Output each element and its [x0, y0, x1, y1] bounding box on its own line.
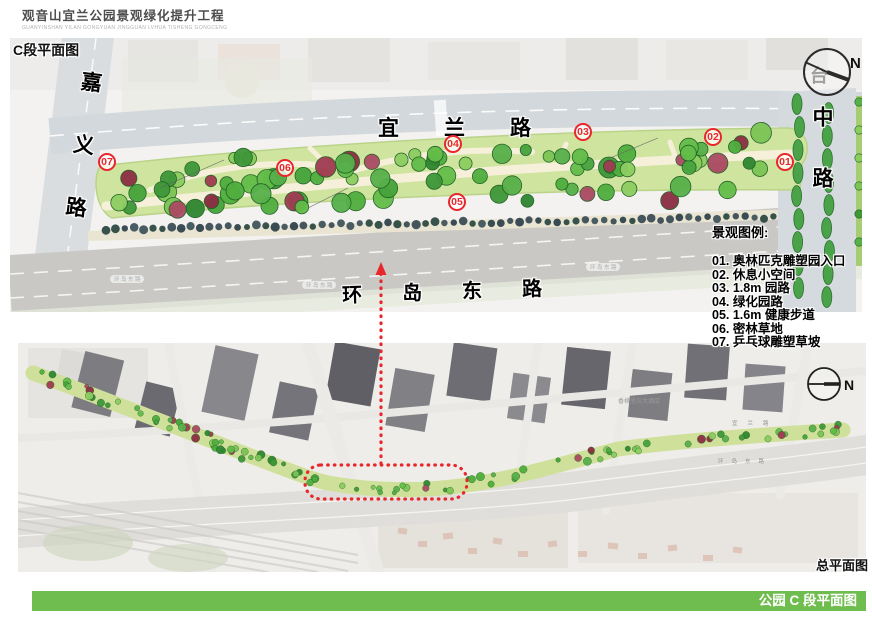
svg-text:环岛东路: 环岛东路	[590, 263, 618, 271]
legend-title: 景观图例:	[712, 222, 845, 241]
keynote-marker-05: 05	[448, 193, 466, 211]
sheet-title-bar: 公园 C 段平面图	[32, 591, 866, 611]
overall-plan-view: 香格里拉大酒店 宜兰路 环岛东路 N	[18, 343, 866, 572]
overview-satellite-illustration: 香格里拉大酒店 宜兰路 环岛东路 N	[18, 343, 866, 572]
svg-text:环岛东路: 环岛东路	[114, 275, 142, 283]
basemap-label-yilan-road: 宜兰路	[732, 419, 779, 427]
legend-item: 02. 休息小空间	[712, 269, 845, 283]
road-label-zhong: 中路	[806, 106, 836, 228]
keynote-marker-04: 04	[444, 135, 462, 153]
plan-view-label: C段平面图	[13, 40, 79, 60]
legend-item: 04. 绿化园路	[712, 296, 845, 310]
project-subtitle-pinyin: GUANYINSHAN YILAN GONGYUAN JINGGUAN LVHU…	[22, 25, 227, 31]
sheet-title: 公园 C 段平面图	[759, 593, 857, 608]
legend-item: 07. 乒乓球雕塑草坡	[712, 336, 845, 350]
landscape-legend: 景观图例: 01. 奥林匹克雕塑园入口 02. 休息小空间 03. 1.8m 园…	[712, 222, 845, 350]
keynote-marker-01: 01	[776, 153, 794, 171]
keynote-marker-06: 06	[276, 159, 294, 177]
legend-item: 01. 奥林匹克雕塑园入口	[712, 255, 845, 269]
road-label-yilan: 宜兰路	[378, 112, 576, 142]
basemap-label-hotel: 香格里拉大酒店	[618, 397, 660, 405]
keynote-marker-02: 02	[704, 128, 722, 146]
north-label: N	[844, 377, 854, 393]
north-label: N	[850, 55, 861, 72]
sheet-header: 观音山宜兰公园景观绿化提升工程 GUANYINSHAN YILAN GONGYU…	[22, 5, 227, 31]
legend-item: 03. 1.8m 园路	[712, 282, 845, 296]
basemap-label-huandao-road: 环岛东路	[718, 457, 772, 465]
drawing-sheet: 观音山宜兰公园景观绿化提升工程 GUANYINSHAN YILAN GONGYU…	[0, 0, 872, 617]
project-title: 观音山宜兰公园景观绿化提升工程	[22, 5, 227, 24]
overview-label: 总平面图	[816, 555, 868, 574]
keynote-marker-03: 03	[574, 123, 592, 141]
keynote-marker-07: 07	[98, 153, 116, 171]
legend-item: 05. 1.6m 健康步道	[712, 309, 845, 323]
svg-text:环岛东路: 环岛东路	[306, 281, 334, 289]
legend-item: 06. 密林草地	[712, 323, 845, 337]
